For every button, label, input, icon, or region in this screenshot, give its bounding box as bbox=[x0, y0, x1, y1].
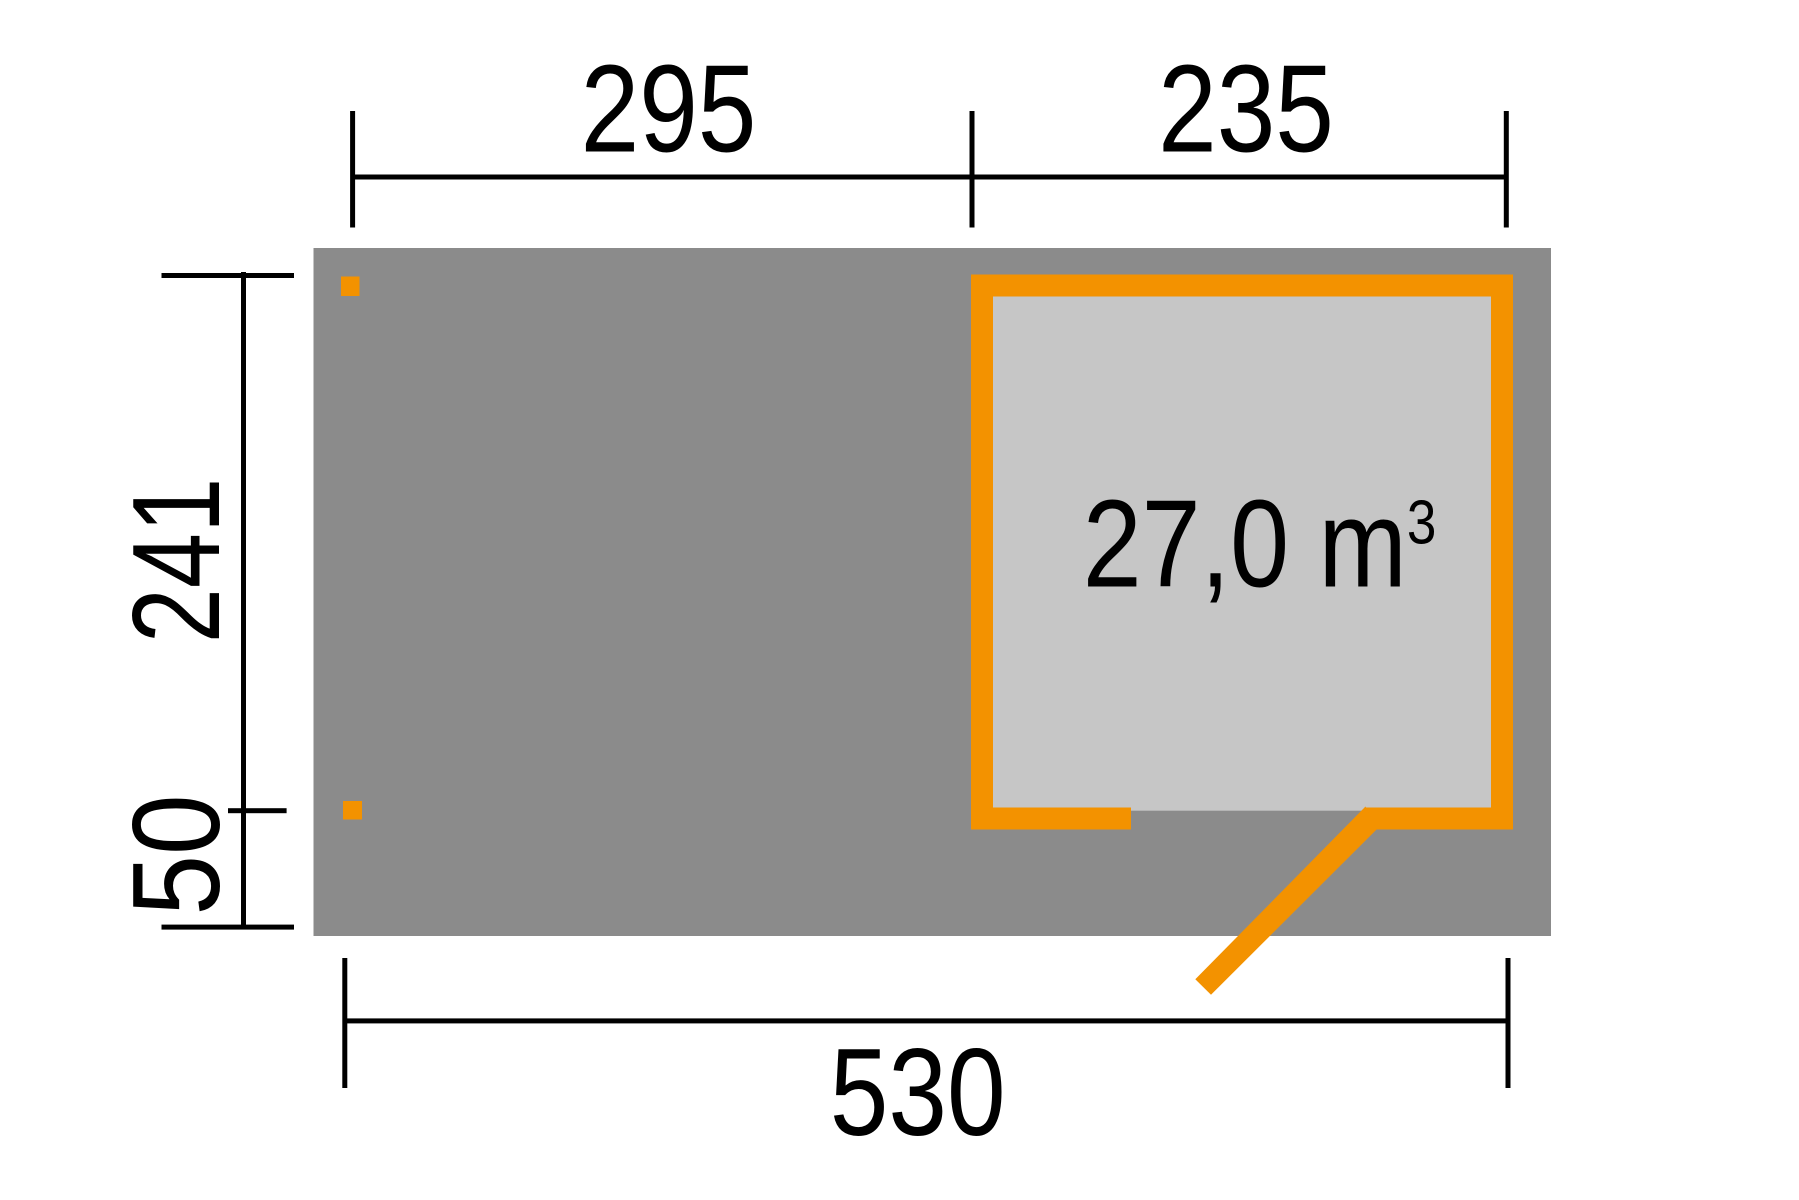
svg-text:50: 50 bbox=[106, 794, 245, 915]
svg-text:241: 241 bbox=[106, 478, 245, 643]
svg-text:235: 235 bbox=[1158, 40, 1334, 178]
svg-text:295: 295 bbox=[581, 40, 757, 178]
svg-text:530: 530 bbox=[830, 1024, 1006, 1162]
svg-text:27,0 m3: 27,0 m3 bbox=[1083, 476, 1437, 614]
